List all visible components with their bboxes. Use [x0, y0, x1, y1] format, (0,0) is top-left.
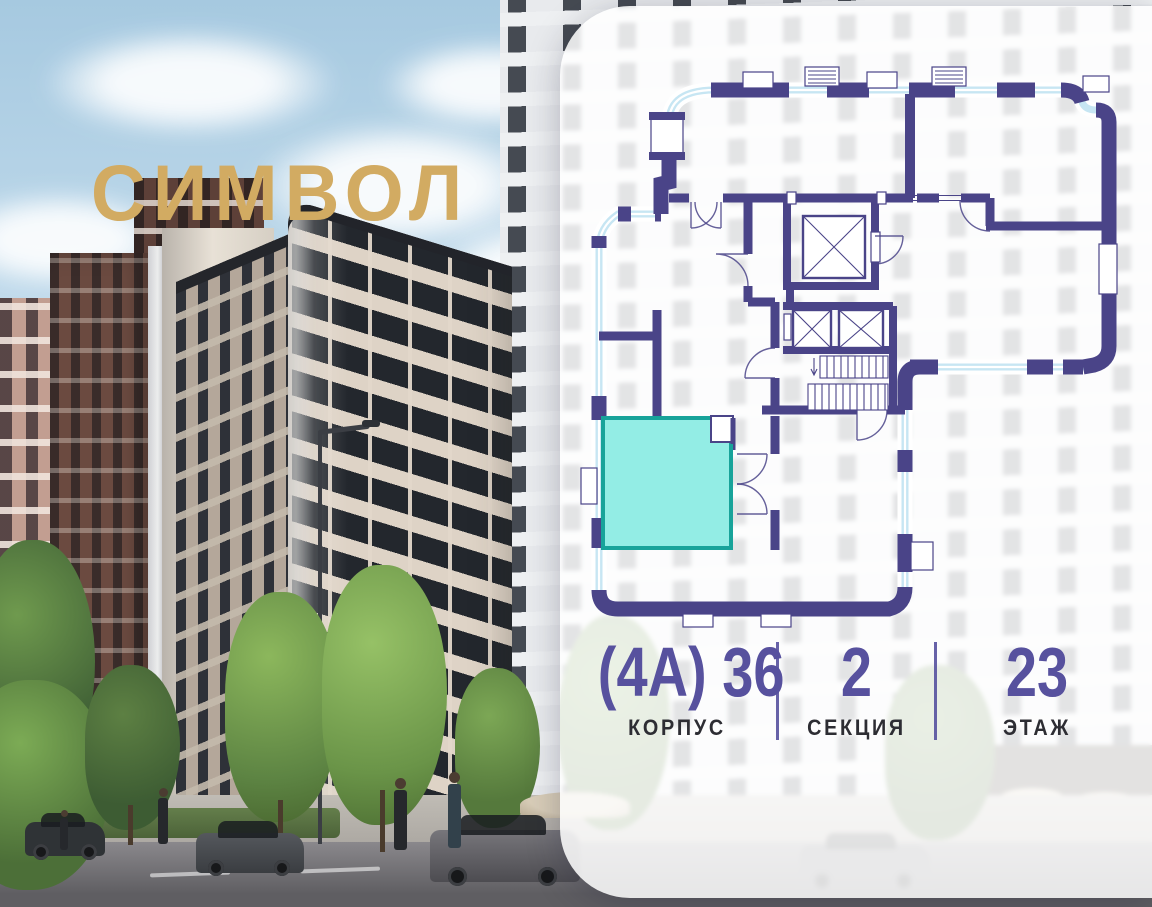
divider — [776, 642, 779, 740]
floor-plan — [565, 58, 1131, 638]
section-value: 2 — [795, 638, 919, 706]
project-logo: СИМВОЛ — [70, 148, 490, 238]
elevator-core — [783, 192, 893, 410]
pedestrian — [448, 772, 461, 848]
apartment-info-bar: (4А) 36 КОРПУС 2 СЕКЦИЯ 23 ЭТАЖ — [578, 638, 1138, 741]
building-label: КОРПУС — [588, 715, 766, 741]
pedestrian — [394, 778, 407, 850]
promo-screen: СИМВОЛ — [0, 0, 1152, 907]
pedestrian — [158, 788, 168, 844]
info-floor: 23 ЭТАЖ — [937, 638, 1137, 741]
info-building: (4А) 36 КОРПУС — [578, 638, 776, 741]
floor-value: 23 — [957, 638, 1117, 706]
info-section: 2 СЕКЦИЯ — [779, 638, 934, 741]
elevator-icon — [793, 310, 831, 348]
pedestrian — [60, 810, 68, 850]
cloud — [40, 28, 340, 138]
street-lamp-head — [362, 420, 380, 427]
elevator-icon — [803, 216, 865, 278]
apartment-door-arcs — [737, 454, 767, 514]
floor-label: ЭТАЖ — [947, 715, 1127, 741]
building-value: (4А) 36 — [598, 638, 756, 706]
tree-trunk — [380, 790, 385, 852]
tree-trunk — [128, 805, 133, 845]
elevator-icon — [839, 310, 883, 348]
section-label: СЕКЦИЯ — [787, 715, 927, 741]
divider — [934, 642, 937, 740]
car — [196, 833, 304, 873]
stairs-icon — [808, 356, 888, 410]
